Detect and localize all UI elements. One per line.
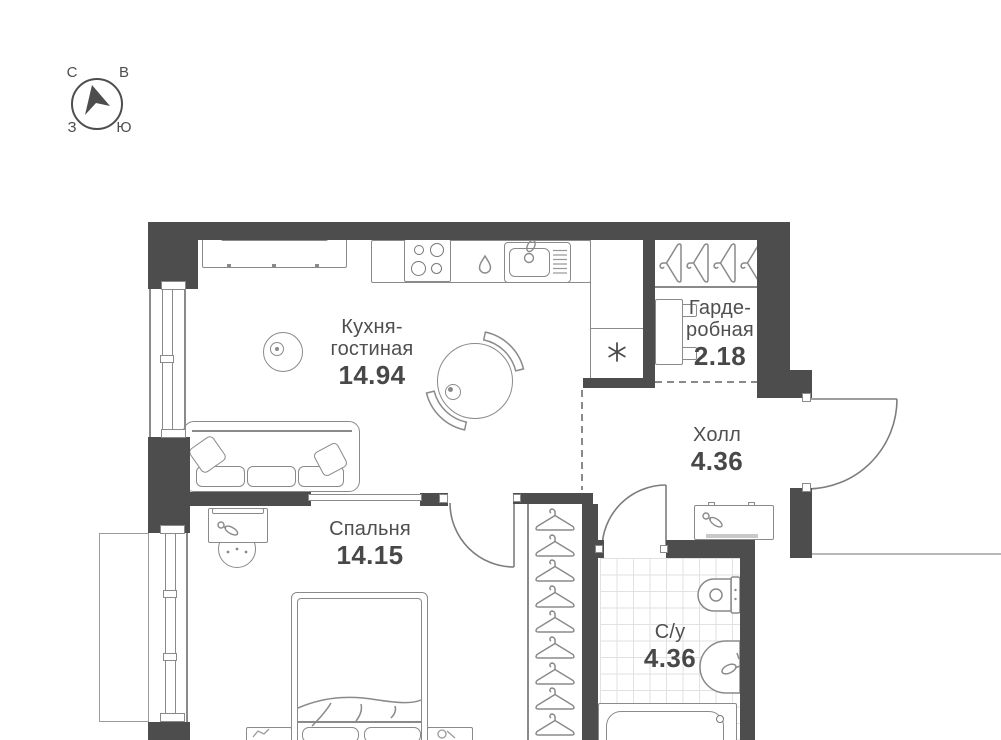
wall-wardrobe-left: [643, 222, 655, 388]
bedroom-window-inner-line: [186, 533, 188, 722]
room-name-line: Спальня: [314, 518, 426, 540]
stove-burner-tl: [414, 245, 424, 255]
floor-plan: С В З Ю: [0, 0, 1001, 740]
compass-north-label: С: [63, 64, 81, 82]
livingroom-window-cap-bottom: [161, 429, 186, 438]
fridge-niche-lower: [590, 328, 644, 380]
entry-door: [807, 399, 897, 489]
sofa-back-line: [192, 430, 352, 432]
table-plate-dot: [448, 387, 453, 392]
stove-burner-br: [431, 263, 442, 274]
room-area: 14.15: [314, 540, 426, 571]
bedroom-window-mullion-2: [163, 653, 177, 661]
hall-wardrobe-dashed-boundary: [655, 381, 757, 383]
hall-console-base: [706, 534, 758, 538]
livingroom-window-outer-line: [149, 289, 151, 437]
table-plate: [445, 384, 461, 400]
bathroom-door: [602, 485, 666, 549]
room-name-line: Гарде-: [670, 297, 770, 319]
bed-pillow-left: [302, 727, 359, 740]
wall-left-pier: [148, 222, 198, 289]
cabinet-knob-2: [272, 264, 276, 267]
room-label-bedroom: Спальня 14.15: [314, 518, 426, 571]
bedroom-window-mullion-1: [163, 590, 177, 598]
hall-kitchen-dashed-boundary: [581, 390, 583, 490]
bathtub-drain: [716, 715, 724, 723]
room-name-line: гостиная: [297, 338, 447, 360]
entry-door-hinge-cap-top: [802, 393, 811, 402]
cabinet-knob-3: [315, 264, 319, 267]
room-area: 4.36: [667, 446, 767, 477]
stove-burner-bl: [411, 261, 426, 276]
bedroom-window-cap-bottom: [160, 713, 185, 722]
wall-left-bottom: [148, 722, 190, 740]
wardrobe-hangers: [660, 244, 762, 282]
bed-pillow-right: [364, 727, 421, 740]
bed-inner: [297, 598, 422, 740]
bedroom-window-frame: [165, 533, 176, 722]
kitchen-sink-basin: [509, 248, 550, 277]
bathroom-door-cap-right: [660, 545, 668, 553]
bedroom-door: [450, 503, 514, 567]
stove: [404, 239, 451, 282]
decor-lamp-dot: [275, 347, 279, 351]
room-label-hall: Холл 4.36: [667, 424, 767, 477]
desk-top-strip: [212, 508, 264, 514]
dining-table: [437, 343, 513, 419]
wall-top: [148, 222, 790, 240]
nightstand-right: [427, 727, 473, 740]
hall-console-knob-1: [708, 502, 715, 506]
wall-entry-bottom: [790, 488, 812, 558]
bed-pillow-line: [297, 721, 422, 723]
livingroom-window-mullion: [160, 355, 174, 363]
livingroom-window-frame: [162, 289, 173, 437]
stove-burner-tr: [430, 243, 444, 257]
room-area: 4.36: [620, 643, 720, 674]
room-name-line: С/у: [620, 621, 720, 643]
room-label-bathroom: С/у 4.36: [620, 621, 720, 674]
room-area: 14.94: [297, 360, 447, 391]
room-name-line: Кухня-: [297, 316, 447, 338]
bedroom-window-cap-top: [160, 525, 185, 534]
wall-bathroom-right: [740, 555, 755, 740]
closet-edge-line: [527, 504, 529, 740]
livingroom-window-inner-line: [184, 289, 186, 437]
compass-east-label: В: [115, 64, 133, 82]
fridge-niche-upper: [590, 234, 644, 330]
bedroom-door-hinge-cap: [439, 494, 448, 503]
wall-niche-bottom: [583, 378, 655, 388]
bathtub-inner: [606, 711, 724, 740]
nightstand-left: [246, 727, 292, 740]
outside-contour-line: [812, 553, 1001, 555]
sofa-cushion-2: [247, 466, 296, 487]
closet-hangers: [536, 509, 574, 735]
room-label-wardrobe: Гарде- робная 2.18: [670, 297, 770, 372]
compass-west-label: З: [63, 119, 81, 137]
closet-corner-cap: [513, 494, 521, 502]
livingroom-window-cap-top: [161, 281, 186, 290]
entry-door-hinge-cap-bottom: [802, 483, 811, 492]
sliding-door-panel: [308, 494, 422, 501]
room-area: 2.18: [670, 341, 770, 372]
bathroom-door-cap-left: [595, 545, 603, 553]
wardrobe-rail-line: [655, 286, 757, 288]
cabinet-knob-1: [227, 264, 231, 267]
room-name-line: Холл: [667, 424, 767, 446]
hall-console-knob-2: [748, 502, 755, 506]
wall-closet-top: [513, 493, 593, 504]
wall-livingroom-bedroom: [148, 492, 311, 506]
bedroom-window-sill: [99, 533, 149, 722]
compass-south-label: Ю: [115, 119, 133, 137]
room-name-line: робная: [670, 319, 770, 341]
room-label-kitchen-living: Кухня- гостиная 14.94: [297, 316, 447, 391]
